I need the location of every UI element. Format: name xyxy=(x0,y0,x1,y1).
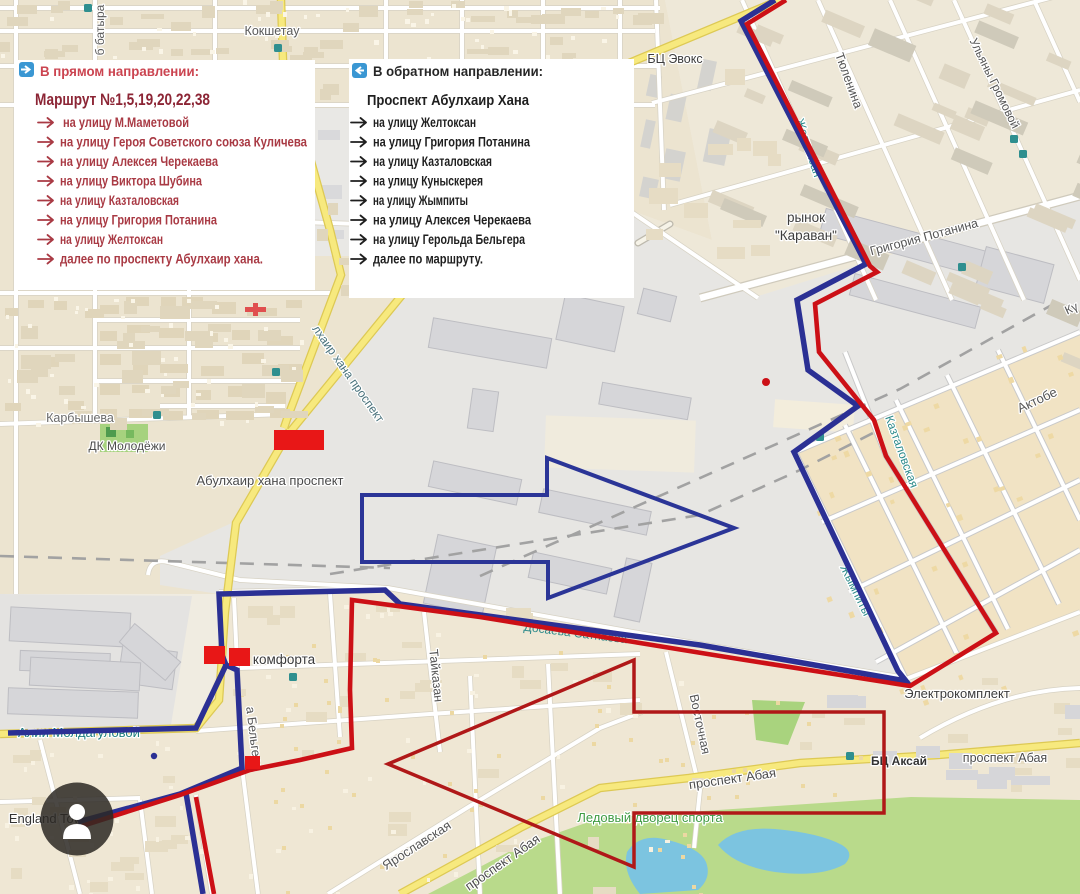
svg-text:Абулхаир хана проспект: Абулхаир хана проспект xyxy=(197,473,344,488)
svg-text:на улицу Казталовская: на улицу Казталовская xyxy=(60,192,179,208)
svg-text:В прямом направлении:: В прямом направлении: xyxy=(40,63,199,79)
svg-text:комфорта: комфорта xyxy=(253,652,316,667)
svg-text:б батыра: б батыра xyxy=(93,4,107,55)
svg-text:В обратном направлении:: В обратном направлении: xyxy=(373,63,543,79)
svg-text:на улицу Григория Потанина: на улицу Григория Потанина xyxy=(373,134,530,150)
svg-text:БЦ Аксай: БЦ Аксай xyxy=(871,754,927,768)
svg-text:далее по проспекту Абулхаир ха: далее по проспекту Абулхаир хана. xyxy=(60,251,263,267)
svg-text:ДК Молодёжи: ДК Молодёжи xyxy=(89,439,166,453)
svg-text:Маршрут №1,5,19,20,22,38: Маршрут №1,5,19,20,22,38 xyxy=(35,91,210,109)
svg-text:"Караван": "Караван" xyxy=(775,228,837,243)
svg-text:на улицу Виктора Шубина: на улицу Виктора Шубина xyxy=(60,173,202,189)
svg-text:на улицу Героя Советского союз: на улицу Героя Советского союза Куличева xyxy=(60,134,307,150)
svg-text:Карбышева: Карбышева xyxy=(46,411,114,425)
svg-text:на улицу М.Маметовой: на улицу М.Маметовой xyxy=(63,114,189,130)
svg-text:Кокшетау: Кокшетау xyxy=(245,24,301,38)
svg-text:проспект Абая: проспект Абая xyxy=(963,751,1047,765)
svg-text:на улицу Алексея Черекаева: на улицу Алексея Черекаева xyxy=(373,212,531,228)
svg-text:рынок: рынок xyxy=(787,210,825,225)
svg-text:на улицу Желтоксан: на улицу Желтоксан xyxy=(60,231,163,247)
svg-text:на улицу Герольда Бельгера: на улицу Герольда Бельгера xyxy=(373,231,525,247)
svg-text:Электрокомплект: Электрокомплект xyxy=(904,686,1010,701)
svg-text:на улицу Григория Потанина: на улицу Григория Потанина xyxy=(60,212,217,228)
svg-text:на улицу Алексея Черекаева: на улицу Алексея Черекаева xyxy=(60,153,218,169)
svg-text:БЦ Эвокс: БЦ Эвокс xyxy=(647,52,702,66)
svg-text:далее по маршруту.: далее по маршруту. xyxy=(373,251,483,267)
svg-text:на улицу Казталовская: на улицу Казталовская xyxy=(373,153,492,169)
svg-text:на улицу Жымпиты: на улицу Жымпиты xyxy=(373,192,468,208)
svg-text:Проспект Абулхаир Хана: Проспект Абулхаир Хана xyxy=(367,93,530,109)
svg-text:на улицу Желтоксан: на улицу Желтоксан xyxy=(373,114,476,130)
svg-text:на улицу Куныскерея: на улицу Куныскерея xyxy=(373,173,483,189)
